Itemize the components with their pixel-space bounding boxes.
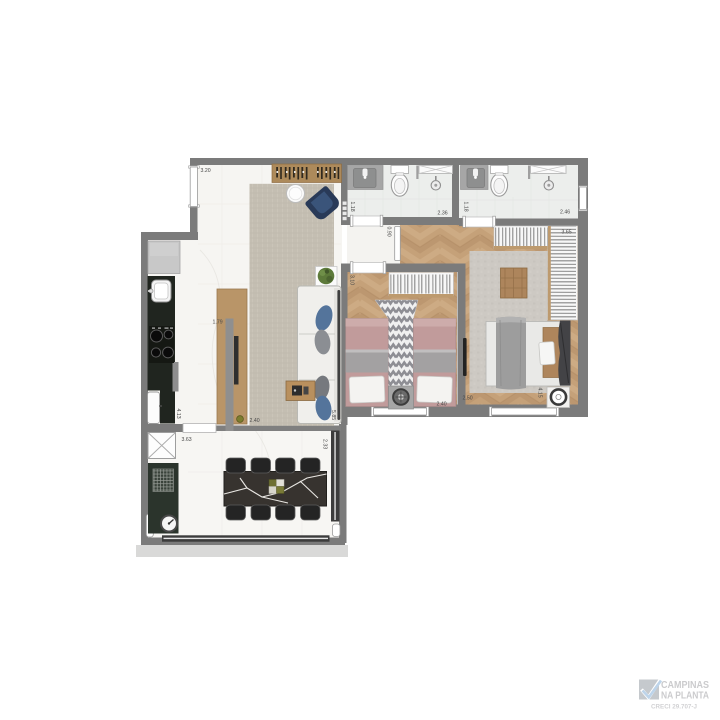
svg-text:2.40: 2.40 <box>250 418 260 424</box>
svg-text:CAMPINAS: CAMPINAS <box>661 680 709 691</box>
svg-text:2.33: 2.33 <box>322 439 328 449</box>
svg-text:2.50: 2.50 <box>463 396 473 402</box>
svg-text:NA PLANTA: NA PLANTA <box>661 691 710 702</box>
svg-text:1.79: 1.79 <box>213 320 223 326</box>
svg-text:3.65: 3.65 <box>562 230 572 236</box>
svg-text:4.13: 4.13 <box>175 409 181 419</box>
svg-text:0.90: 0.90 <box>386 227 392 237</box>
svg-text:3.10: 3.10 <box>349 275 355 285</box>
svg-text:5.85: 5.85 <box>330 410 336 420</box>
svg-text:2.46: 2.46 <box>560 210 570 216</box>
svg-text:1.18: 1.18 <box>463 202 469 212</box>
svg-text:2.36: 2.36 <box>438 211 448 217</box>
svg-text:3.20: 3.20 <box>201 168 211 174</box>
svg-text:3.63: 3.63 <box>182 437 192 443</box>
svg-text:2.40: 2.40 <box>437 402 447 408</box>
svg-text:4.15: 4.15 <box>537 388 543 398</box>
svg-text:CRECI 29.707-J: CRECI 29.707-J <box>651 704 697 711</box>
svg-text:1.18: 1.18 <box>349 202 355 212</box>
